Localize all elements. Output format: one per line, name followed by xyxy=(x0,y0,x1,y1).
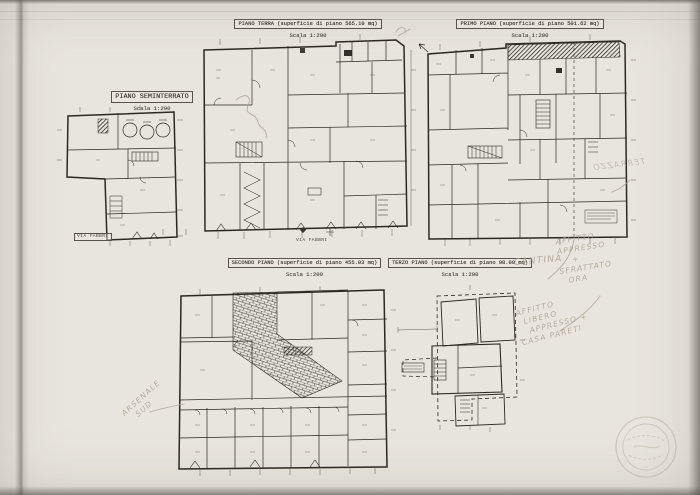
title-terzo: TERZO PIANO (superficie di piano 98.09 m… xyxy=(388,258,532,268)
scale-terzo: Scala 1:200 xyxy=(385,271,535,278)
plan-secondo xyxy=(179,286,396,476)
title-group-secondo: SECONDO PIANO (superficie di piano 455.0… xyxy=(222,251,387,278)
plan-terzo xyxy=(398,285,525,432)
handwritten-note-affitto-1: AFFITTO APPRESSO + SFRATTATO ORA xyxy=(555,230,614,286)
title-group-primo: PRIMO PIANO (superficie di piano 501.62 … xyxy=(450,12,610,39)
pencil-marks xyxy=(150,28,630,412)
scan-artifact-line xyxy=(0,19,700,20)
title-terra: PIANO TERRA (superficie di piano 565.10 … xyxy=(234,19,381,29)
scale-terra: Scala 1:200 xyxy=(228,32,388,39)
title-group-terzo: TERZO PIANO (superficie di piano 98.09 m… xyxy=(385,251,535,278)
street-label-terra: VIA FABBRI xyxy=(296,238,328,243)
plan-primo xyxy=(419,34,636,246)
title-group-terra: PIANO TERRA (superficie di piano 565.10 … xyxy=(228,12,388,39)
scale-primo: Scala 1:200 xyxy=(450,32,610,39)
scanned-floorplan-sheet: PIANO SEMINTERRATO Scala 1:200 PIANO TER… xyxy=(0,0,700,495)
title-group-seminterrato: PIANO SEMINTERRATO Scala 1:200 xyxy=(92,85,212,112)
scale-secondo: Scala 1:200 xyxy=(222,271,387,278)
title-secondo: SECONDO PIANO (superficie di piano 455.0… xyxy=(228,258,382,268)
embossed-stamp xyxy=(616,417,676,477)
plan-terra xyxy=(163,34,416,239)
title-seminterrato: PIANO SEMINTERRATO xyxy=(111,91,192,103)
scale-seminterrato: Scala 1:200 xyxy=(92,105,212,112)
title-primo: PRIMO PIANO (superficie di piano 501.62 … xyxy=(456,19,603,29)
street-label-seminterrato: VIA FABBRI xyxy=(74,233,112,241)
scan-artifact-line xyxy=(0,11,700,12)
